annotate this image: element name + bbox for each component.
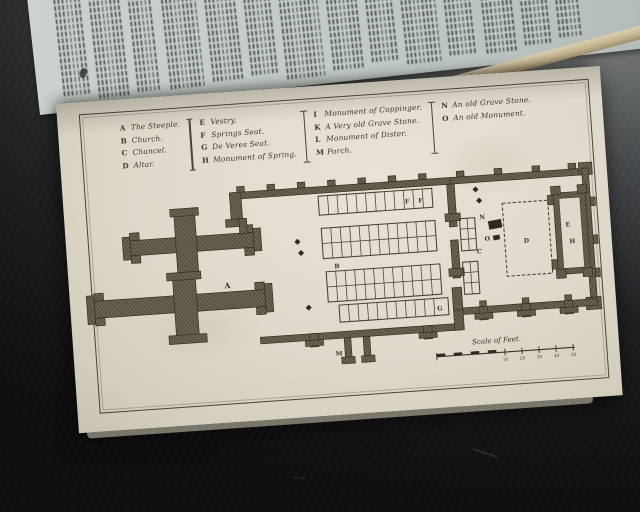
legend-divider [431, 103, 436, 153]
legend-item-label: Church. [131, 133, 163, 144]
plan-label-springs-seat-1: F [405, 198, 410, 205]
engraving-page: AThe Steeple.BChurch.CChancel.DAltar.EVe… [56, 66, 623, 433]
legend-item-label: The Steeple. [130, 119, 180, 131]
legend-item-letter: G [201, 142, 213, 152]
illegible-text-column [48, 0, 90, 96]
legend-item-letter: M [316, 147, 328, 157]
illegible-text-column [196, 0, 243, 82]
legend-item-letter: A [120, 123, 132, 133]
legend-item-letter: B [120, 135, 132, 145]
legend-item-letter: H [202, 155, 214, 165]
legend-item-letter: D [122, 160, 134, 170]
table-scratch [292, 476, 306, 480]
plan-label-monument-spring: H [569, 238, 575, 245]
scale-label: Scale of Feet. [472, 334, 522, 346]
legend-item: BChurch. [120, 132, 181, 145]
legend-item-label: Springs Seat. [211, 126, 265, 139]
scale-tick: 50 [571, 353, 577, 358]
plan-label-porch: M [336, 350, 343, 357]
scale-tick: 10 [503, 357, 509, 362]
legend-item-label: Altar. [133, 159, 155, 169]
legend-item-letter: C [121, 148, 133, 158]
legend-item-label: Vestry. [210, 115, 237, 126]
plan-label-old-monument: O [484, 235, 490, 242]
grave-markers [291, 185, 507, 312]
plan-label-chancel: C [477, 248, 482, 255]
legend-item: CChancel. [121, 144, 182, 157]
legend-column: AThe Steeple.BChurch.CChancel.DAltar. [120, 119, 184, 173]
plan-label-altar: D [524, 237, 530, 244]
legend-item-label: An old Monument. [453, 108, 526, 122]
illegible-text-column [153, 0, 205, 89]
plan-label-church: B [334, 263, 340, 270]
legend-item-label: Porch. [327, 145, 353, 156]
illegible-text-column [235, 0, 277, 76]
legend-item-letter: I [313, 109, 325, 119]
scale-tick: 30 [537, 355, 543, 360]
legend-item-letter: K [314, 122, 326, 132]
plan-label-steeple: A [223, 281, 231, 290]
legend-item-letter: L [315, 134, 327, 144]
photo-of-open-book: AThe Steeple.BChurch.CChancel.DAltar.EVe… [0, 0, 640, 512]
scale-tick: 40 [554, 354, 560, 359]
legend-item-letter: E [199, 117, 211, 127]
legend-column: EVestry.FSprings Seat.GDe Veres Seat.HMo… [199, 111, 297, 167]
legend-item-label: Chancel. [132, 145, 167, 156]
legend-item: OAn old Monument. [442, 107, 532, 122]
vestry-interior [559, 197, 585, 269]
scale-bar: Scale of Feet. 10 20 30 40 50 [436, 330, 577, 367]
legend-item: HMonument of Spring. [202, 149, 297, 165]
plan-label-vestry: E [565, 221, 570, 228]
church-floor-plan: A B C D E H F F G M N O Scale of Feet. 1… [74, 151, 610, 401]
legend-item: DAltar. [122, 157, 183, 170]
legend-item-letter: F [200, 130, 212, 140]
plan-label-grave-stone: N [479, 214, 485, 221]
legend-column: NAn old Grave Stone.OAn old Monument. [441, 95, 532, 126]
plan-label-deveres-seat: G [437, 305, 443, 312]
legend-divider [189, 120, 194, 170]
legend-divider [303, 112, 308, 162]
legend-item-label: Monument of Spring. [213, 149, 297, 164]
illegible-text-column [269, 0, 325, 80]
scale-tick: 20 [520, 356, 526, 361]
legend-item-label: De Veres Seat. [212, 138, 270, 151]
legend-column: IMonument of Coppinger.KA Very old Grave… [313, 102, 425, 159]
table-scratch [472, 448, 497, 458]
